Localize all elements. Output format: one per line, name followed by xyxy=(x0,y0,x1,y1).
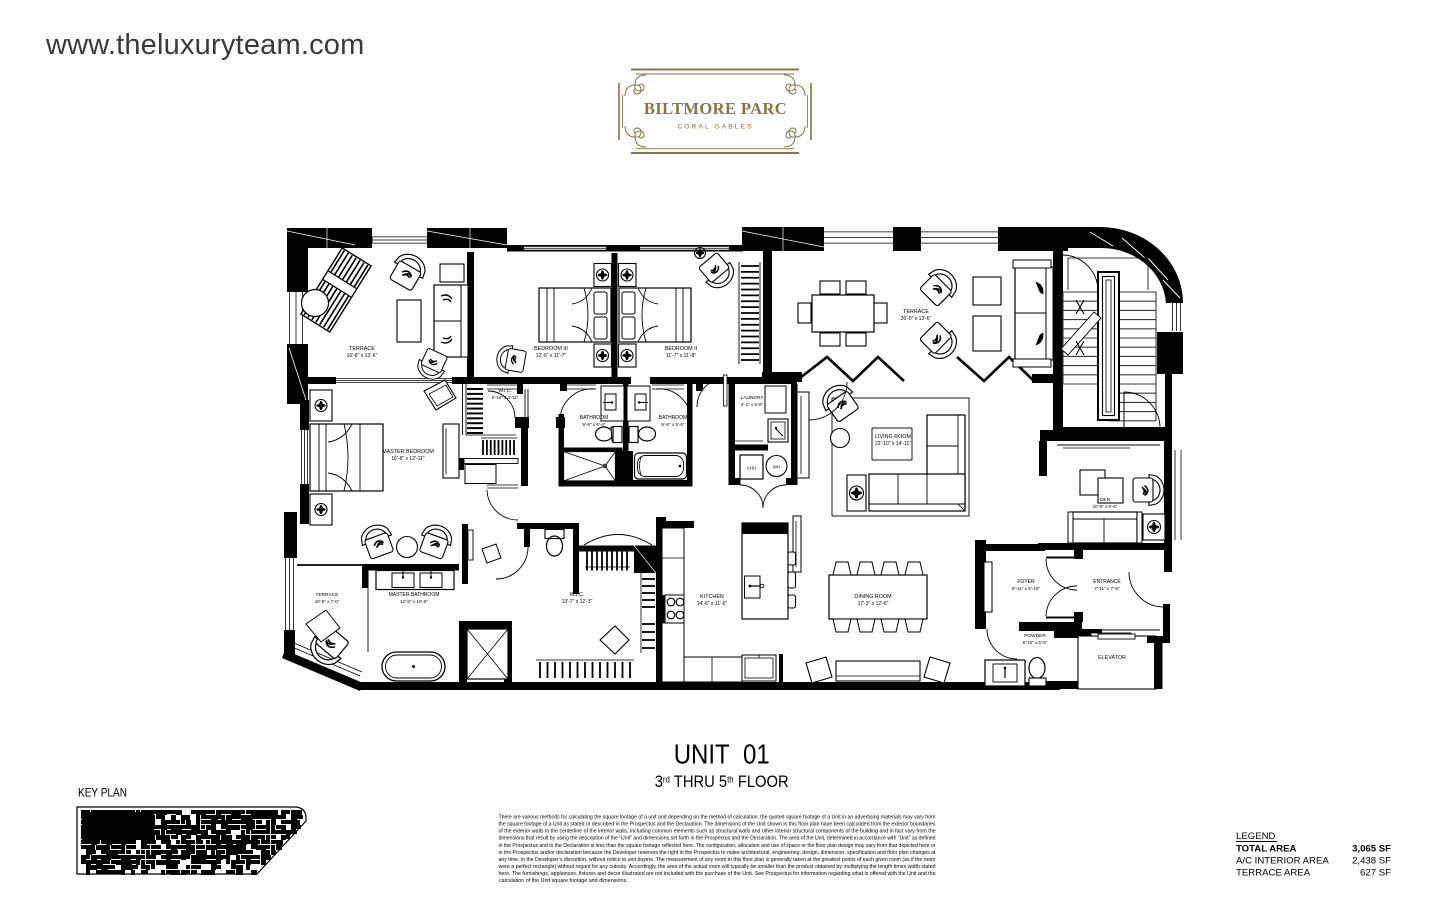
svg-text:9'-6" x 5'-6": 9'-6" x 5'-6" xyxy=(661,422,685,427)
svg-text:TERRACE: TERRACE xyxy=(316,592,339,598)
svg-text:CORAL GABLES: CORAL GABLES xyxy=(677,124,753,131)
svg-text:12'-6" x 11'-7": 12'-6" x 11'-7" xyxy=(536,353,567,359)
svg-text:16'-8" x 13'-6": 16'-8" x 13'-6" xyxy=(347,353,378,359)
svg-text:W.I.C.: W.I.C. xyxy=(498,388,511,394)
svg-text:in the Prospectus and/or decla: in the Prospectus and/or declaration bec… xyxy=(499,850,936,856)
svg-text:MASTER BEDROOM: MASTER BEDROOM xyxy=(382,449,434,455)
svg-text:6'-10" x 5'-6": 6'-10" x 5'-6" xyxy=(1023,640,1048,645)
svg-text:KITCHEN: KITCHEN xyxy=(700,594,724,600)
svg-text:ENTRANCE: ENTRANCE xyxy=(1093,579,1121,585)
svg-text:W.I.C.: W.I.C. xyxy=(570,592,585,598)
svg-text:17'-3" x 12'-6": 17'-3" x 12'-6" xyxy=(858,601,889,607)
svg-text:22'-10" x 14'-11": 22'-10" x 14'-11" xyxy=(875,441,911,447)
svg-text:TERRACE: TERRACE xyxy=(903,309,929,315)
svg-text:BATHROOM: BATHROOM xyxy=(580,415,609,421)
svg-text:WH: WH xyxy=(773,465,780,470)
svg-text:UNIT 01: UNIT 01 xyxy=(674,739,770,770)
svg-text:any time, in the Developer’s d: any time, in the Developer’s discretion,… xyxy=(499,857,937,863)
svg-text:calculation of the Unit square: calculation of the Unit square footage a… xyxy=(499,878,628,884)
svg-text:KEY PLAN: KEY PLAN xyxy=(78,788,127,800)
svg-text:here. The furnishings, applian: here. The furnishings, appliances, fixtu… xyxy=(499,871,936,877)
svg-text:13'-7" x 12'-3": 13'-7" x 12'-3" xyxy=(562,599,593,605)
svg-text:LEGEND: LEGEND xyxy=(1236,831,1276,842)
svg-text:DINING ROOM: DINING ROOM xyxy=(854,594,892,600)
svg-text:There are various methods for: There are various methods for calculatin… xyxy=(499,815,937,821)
svg-text:12'-6" x 10'-6": 12'-6" x 10'-6" xyxy=(400,599,429,604)
svg-text:BATHROOM: BATHROOM xyxy=(659,415,688,421)
svg-text:26'-0" x 13'-6": 26'-0" x 13'-6" xyxy=(901,316,932,322)
svg-text:FOYER: FOYER xyxy=(1017,579,1035,585)
svg-text:10'-5" x 7'-0": 10'-5" x 7'-0" xyxy=(315,599,340,604)
svg-text:were a perfect rectangle) with: were a perfect rectangle) without regard… xyxy=(498,864,936,870)
svg-text:627 SF: 627 SF xyxy=(1360,868,1391,879)
svg-text:14'-6" x 11'-6": 14'-6" x 11'-6" xyxy=(697,601,728,607)
svg-text:the square footage of a Unit a: the square footage of a Unit as stated o… xyxy=(499,822,936,828)
svg-text:2,438 SF: 2,438 SF xyxy=(1352,856,1391,867)
svg-text:LIVING ROOM: LIVING ROOM xyxy=(875,434,911,440)
svg-text:BEDROOM III: BEDROOM III xyxy=(534,346,568,352)
svg-text:A/C INTERIOR AREA: A/C INTERIOR AREA xyxy=(1236,856,1329,867)
svg-text:dimensions that result by usin: dimensions that result by using the desc… xyxy=(499,836,936,842)
svg-text:LAUNDRY: LAUNDRY xyxy=(741,395,765,401)
svg-text:of the exterior walls to the c: of the exterior walls to the centerline … xyxy=(499,829,936,835)
svg-text:9'-6" x 5'-4": 9'-6" x 5'-4" xyxy=(582,422,606,427)
svg-text:TOTAL AREA: TOTAL AREA xyxy=(1236,844,1296,855)
svg-text:7'-11" x 7'-6": 7'-11" x 7'-6" xyxy=(1094,586,1120,591)
svg-text:6'-1" x 5'-6": 6'-1" x 5'-6" xyxy=(741,402,764,407)
svg-text:in the Prospectus and in the D: in the Prospectus and in the Declaration… xyxy=(499,843,936,849)
svg-text:AHU: AHU xyxy=(747,466,757,471)
svg-text:10'-9" x 9'-6": 10'-9" x 9'-6" xyxy=(1093,504,1118,509)
svg-text:BILTMORE PARC: BILTMORE PARC xyxy=(644,99,787,118)
svg-text:www.theluxuryteam.com: www.theluxuryteam.com xyxy=(45,29,364,61)
svg-text:5'-10" x 4'-11": 5'-10" x 4'-11" xyxy=(492,395,519,400)
svg-text:TERRACE AREA: TERRACE AREA xyxy=(1236,868,1311,879)
svg-text:MASTER BATHROOM: MASTER BATHROOM xyxy=(389,592,440,598)
svg-text:3,065 SF: 3,065 SF xyxy=(1352,844,1391,855)
svg-text:TERRACE: TERRACE xyxy=(349,346,375,352)
svg-text:POWDER: POWDER xyxy=(1024,633,1046,639)
svg-text:16'-6" x 12'-11": 16'-6" x 12'-11" xyxy=(391,456,424,462)
svg-text:ELEVATOR: ELEVATOR xyxy=(1098,655,1126,661)
svg-text:BEDROOM II: BEDROOM II xyxy=(665,346,697,352)
svg-text:DEN: DEN xyxy=(1100,497,1111,503)
svg-text:3rd THRU 5th FLOOR: 3rd THRU 5th FLOOR xyxy=(655,772,789,791)
svg-text:11'-7" x 11'-8": 11'-7" x 11'-8" xyxy=(666,353,696,359)
svg-text:8'-11" x 6'-10": 8'-11" x 6'-10" xyxy=(1012,586,1040,591)
